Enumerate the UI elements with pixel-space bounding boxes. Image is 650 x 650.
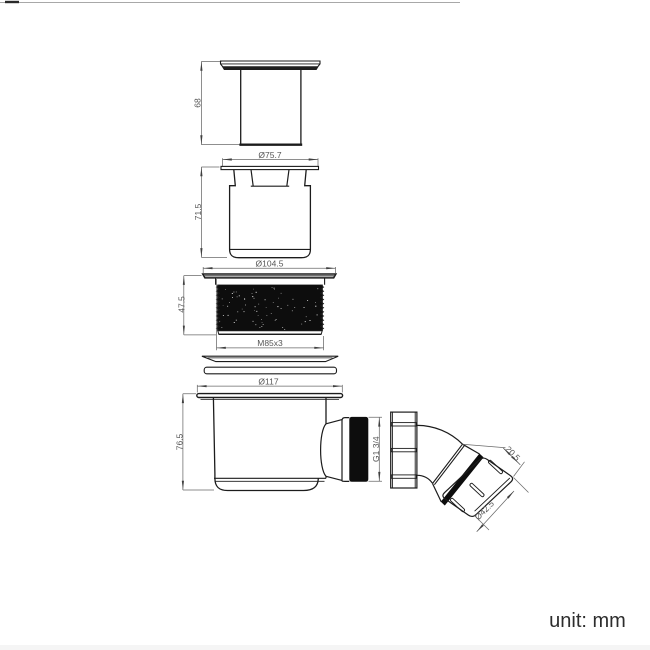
svg-text:68: 68 xyxy=(192,98,202,108)
svg-text:71.5: 71.5 xyxy=(193,203,203,220)
svg-text:M85x3: M85x3 xyxy=(257,338,283,348)
svg-text:76.5: 76.5 xyxy=(174,433,184,450)
svg-text:Ø104.5: Ø104.5 xyxy=(256,259,284,269)
svg-text:unit: mm: unit: mm xyxy=(549,610,626,632)
svg-text:G1 3/4: G1 3/4 xyxy=(371,436,381,462)
svg-text:47.5: 47.5 xyxy=(177,296,187,313)
svg-text:Ø117: Ø117 xyxy=(258,376,278,386)
svg-text:Ø75.7: Ø75.7 xyxy=(258,150,281,160)
